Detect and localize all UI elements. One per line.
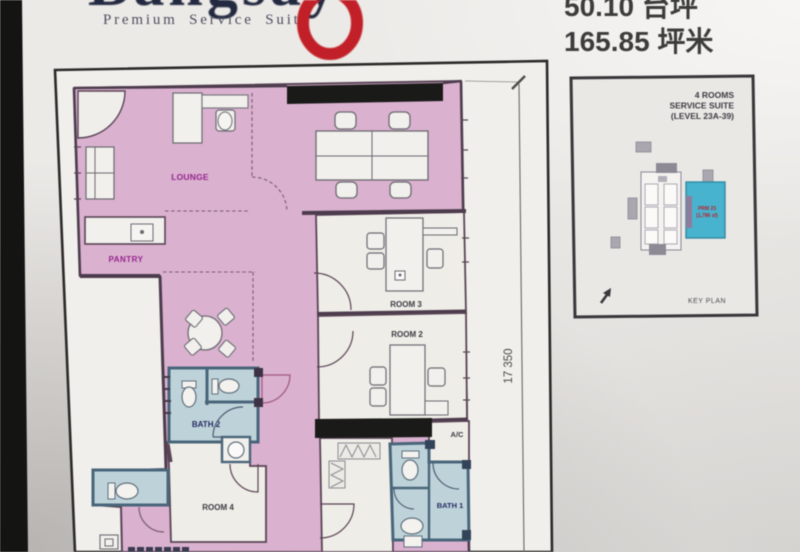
svg-text:ROOM 4: ROOM 4 (202, 503, 234, 512)
svg-text:ROOM 2: ROOM 2 (391, 330, 423, 339)
svg-text:BATH 2: BATH 2 (192, 420, 221, 429)
svg-text:4 ROOMS: 4 ROOMS (695, 90, 735, 100)
svg-text:(1,786 sf): (1,786 sf) (696, 213, 718, 219)
svg-text:SERVICE SUITE: SERVICE SUITE (669, 101, 734, 111)
svg-text:BATH 1: BATH 1 (437, 501, 464, 510)
svg-text:LOUNGE: LOUNGE (171, 172, 209, 182)
svg-text:PRM 23: PRM 23 (698, 206, 716, 212)
svg-text:17 350: 17 350 (503, 348, 515, 383)
svg-text:(LEVEL 23A-39): (LEVEL 23A-39) (671, 111, 734, 121)
svg-text:KEY PLAN: KEY PLAN (688, 298, 726, 305)
svg-text:PANTRY: PANTRY (109, 255, 144, 264)
svg-text:ROOM 3: ROOM 3 (390, 300, 422, 309)
svg-text:A/C: A/C (451, 430, 465, 439)
